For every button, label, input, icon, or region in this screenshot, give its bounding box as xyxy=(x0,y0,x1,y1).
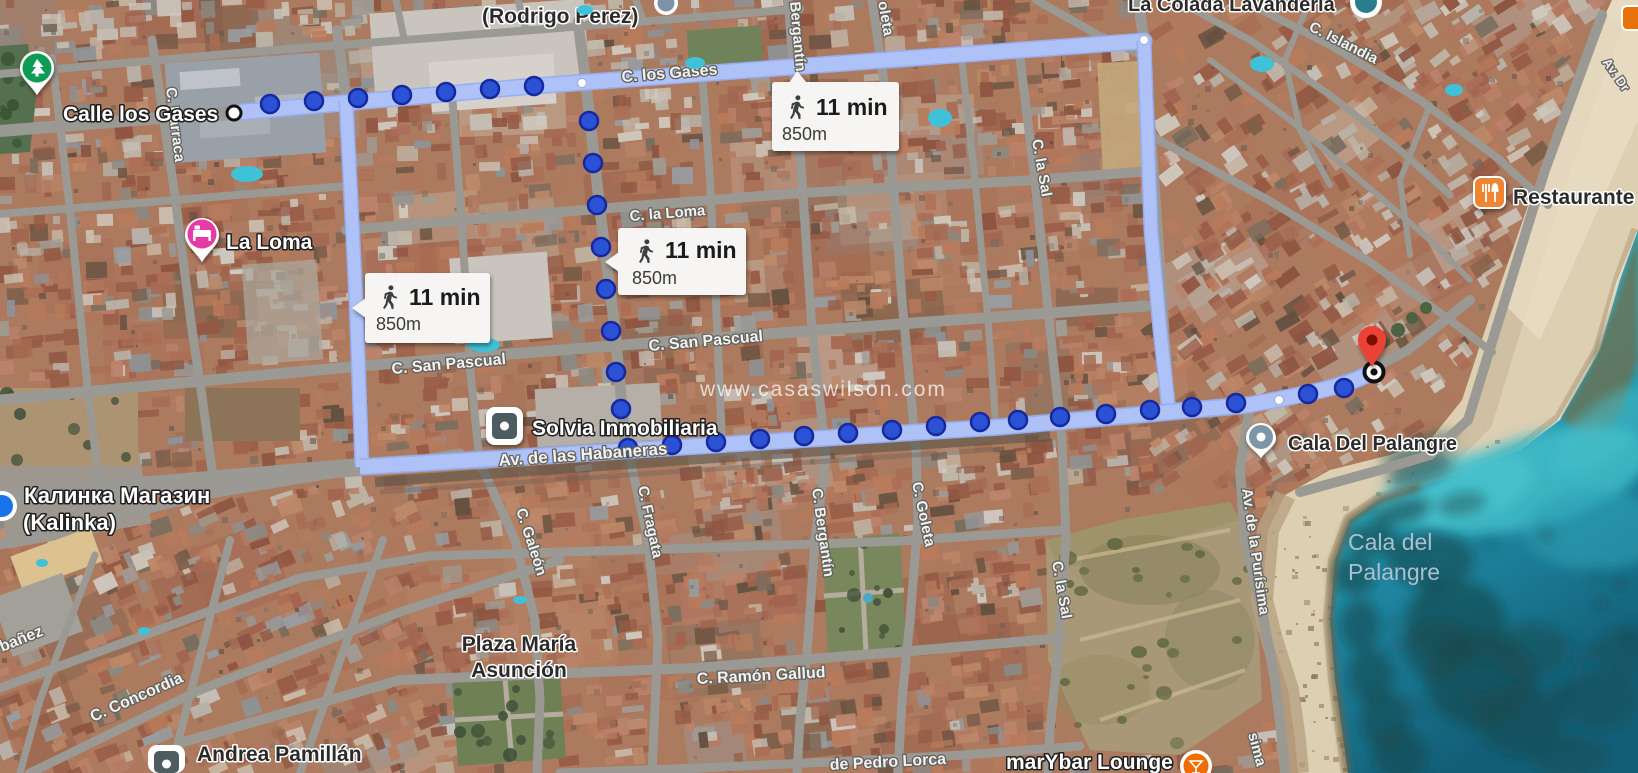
svg-text:850m: 850m xyxy=(632,268,677,288)
svg-text:850m: 850m xyxy=(376,314,421,334)
svg-text:La Loma: La Loma xyxy=(226,231,313,254)
svg-text:Palangre: Palangre xyxy=(1348,559,1440,585)
svg-text:11 min: 11 min xyxy=(816,94,888,120)
svg-text:850m: 850m xyxy=(782,124,827,144)
svg-text:Plaza María: Plaza María xyxy=(462,633,577,656)
svg-text:Cala Del Palangre: Cala Del Palangre xyxy=(1288,433,1457,455)
svg-text:(Rodrigo Perez): (Rodrigo Perez) xyxy=(482,5,638,28)
svg-text:(Kalinka): (Kalinka) xyxy=(23,510,116,535)
svg-text:Asunción: Asunción xyxy=(471,659,567,682)
svg-text:Solvia Inmobiliaria: Solvia Inmobiliaria xyxy=(532,417,718,440)
svg-text:www.casaswilson.com: www.casaswilson.com xyxy=(699,378,947,401)
svg-text:Cala del: Cala del xyxy=(1348,529,1432,555)
svg-text:Калинка Магазин: Калинка Магазин xyxy=(24,483,210,508)
svg-text:Andrea Pamillán: Andrea Pamillán xyxy=(197,743,362,766)
svg-text:marYbar Lounge: marYbar Lounge xyxy=(1006,751,1173,773)
svg-text:La Colada Lavandería: La Colada Lavandería xyxy=(1128,0,1336,16)
svg-text:Restaurante: Restaurante xyxy=(1513,186,1634,209)
svg-text:11 min: 11 min xyxy=(409,284,481,310)
svg-text:11 min: 11 min xyxy=(665,237,737,263)
svg-text:Calle los Gases: Calle los Gases xyxy=(63,103,218,126)
